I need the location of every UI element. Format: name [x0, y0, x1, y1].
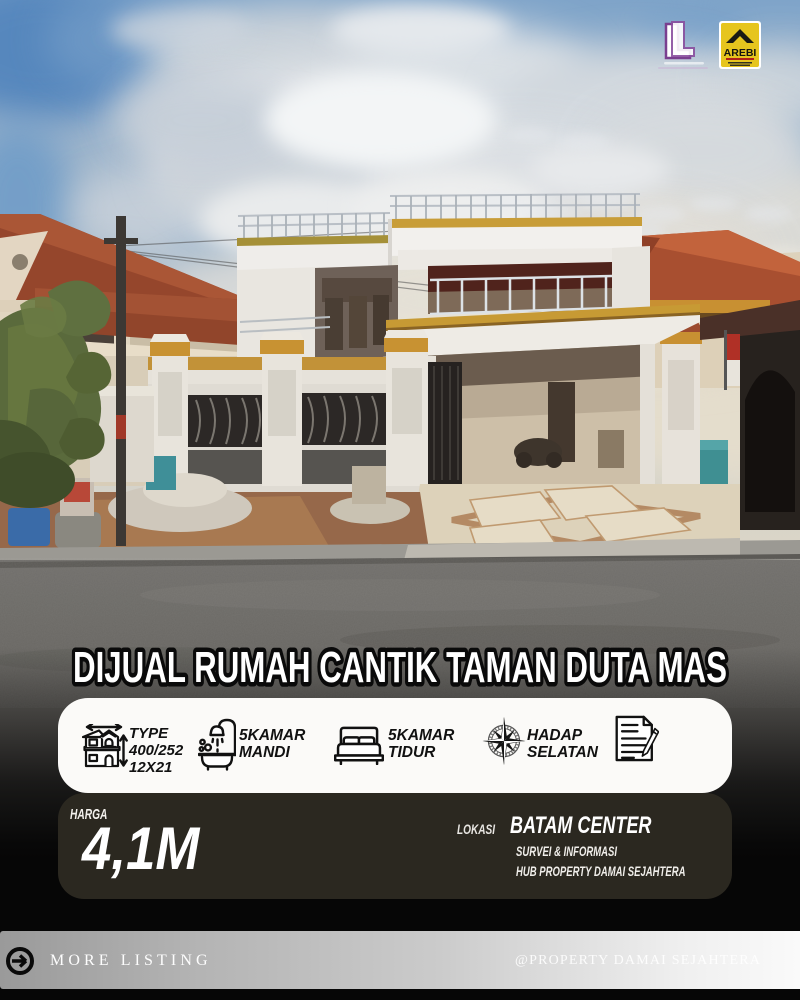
svg-text:AREBI: AREBI: [724, 47, 757, 59]
svg-text:DIJUAL RUMAH CANTIK TAMAN DUTA: DIJUAL RUMAH CANTIK TAMAN DUTA MAS: [73, 643, 727, 692]
